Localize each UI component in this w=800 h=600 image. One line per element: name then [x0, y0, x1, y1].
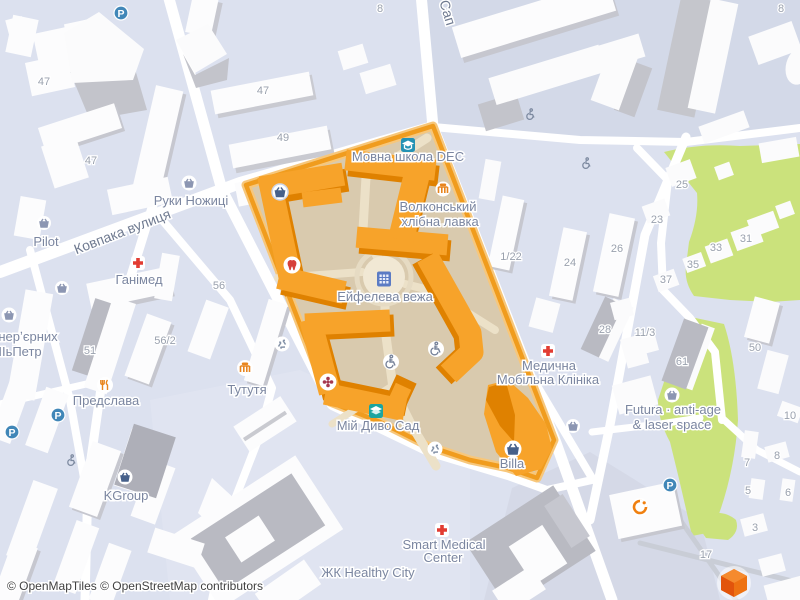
- svg-text:1/22: 1/22: [500, 251, 521, 263]
- svg-text:28: 28: [599, 324, 611, 336]
- svg-text:8: 8: [778, 3, 784, 15]
- svg-text:8: 8: [774, 450, 780, 462]
- svg-text:P: P: [8, 427, 15, 439]
- svg-text:Futura · anti-age: Futura · anti-age: [625, 402, 721, 417]
- svg-text:25: 25: [676, 179, 688, 191]
- svg-text:47: 47: [257, 85, 269, 97]
- svg-text:P: P: [54, 410, 61, 422]
- svg-text:Pilot: Pilot: [33, 234, 59, 249]
- svg-text:26: 26: [611, 243, 623, 255]
- svg-text:Мовна школа DEC: Мовна школа DEC: [352, 149, 464, 164]
- svg-text:Медична: Медична: [522, 358, 577, 373]
- svg-text:17: 17: [700, 549, 712, 561]
- svg-text:11/3: 11/3: [635, 327, 656, 339]
- svg-text:ЖК Healthy City: ЖК Healthy City: [321, 565, 415, 580]
- svg-text:Ганімед: Ганімед: [115, 272, 162, 287]
- svg-text:37: 37: [660, 274, 672, 286]
- svg-text:24: 24: [564, 257, 576, 269]
- svg-text:Волконський: Волконський: [400, 199, 477, 214]
- svg-text:8: 8: [377, 3, 383, 15]
- svg-text:& laser space: & laser space: [633, 417, 712, 432]
- svg-text:ІІьПетр: ІІьПетр: [0, 344, 42, 359]
- svg-text:10: 10: [784, 410, 796, 422]
- svg-text:Предслава: Предслава: [73, 393, 140, 408]
- svg-text:Billa: Billa: [500, 456, 525, 471]
- svg-text:Мобільна Клініка: Мобільна Клініка: [497, 372, 600, 387]
- svg-text:47: 47: [38, 76, 50, 88]
- svg-text:61: 61: [676, 356, 688, 368]
- svg-text:51: 51: [84, 345, 96, 357]
- svg-text:Ейфелева вежа: Ейфелева вежа: [337, 289, 433, 304]
- svg-text:49: 49: [277, 132, 289, 144]
- svg-text:© OpenMapTiles © OpenStreetMap: © OpenMapTiles © OpenStreetMap contribut…: [7, 579, 263, 593]
- svg-text:P: P: [117, 8, 124, 20]
- svg-text:Тутутя: Тутутя: [227, 382, 266, 397]
- svg-text:KGroup: KGroup: [104, 488, 149, 503]
- svg-text:47: 47: [85, 155, 97, 167]
- svg-text:6: 6: [785, 487, 791, 499]
- svg-text:хлібна лавка: хлібна лавка: [401, 214, 479, 229]
- svg-text:56/2: 56/2: [154, 335, 175, 347]
- svg-text:56: 56: [213, 280, 225, 292]
- svg-text:31: 31: [740, 233, 752, 245]
- svg-text:50: 50: [749, 342, 761, 354]
- svg-text:P: P: [666, 480, 673, 492]
- svg-text:3: 3: [752, 522, 758, 534]
- svg-text:5: 5: [745, 485, 751, 497]
- svg-text:Center: Center: [423, 550, 463, 565]
- svg-text:23: 23: [651, 214, 663, 226]
- svg-text:7: 7: [744, 457, 750, 469]
- svg-text:35: 35: [687, 259, 699, 271]
- svg-text:нерʼєрних: нерʼєрних: [0, 329, 58, 344]
- svg-text:Мій Диво Сад: Мій Диво Сад: [337, 418, 420, 433]
- svg-text:33: 33: [710, 242, 722, 254]
